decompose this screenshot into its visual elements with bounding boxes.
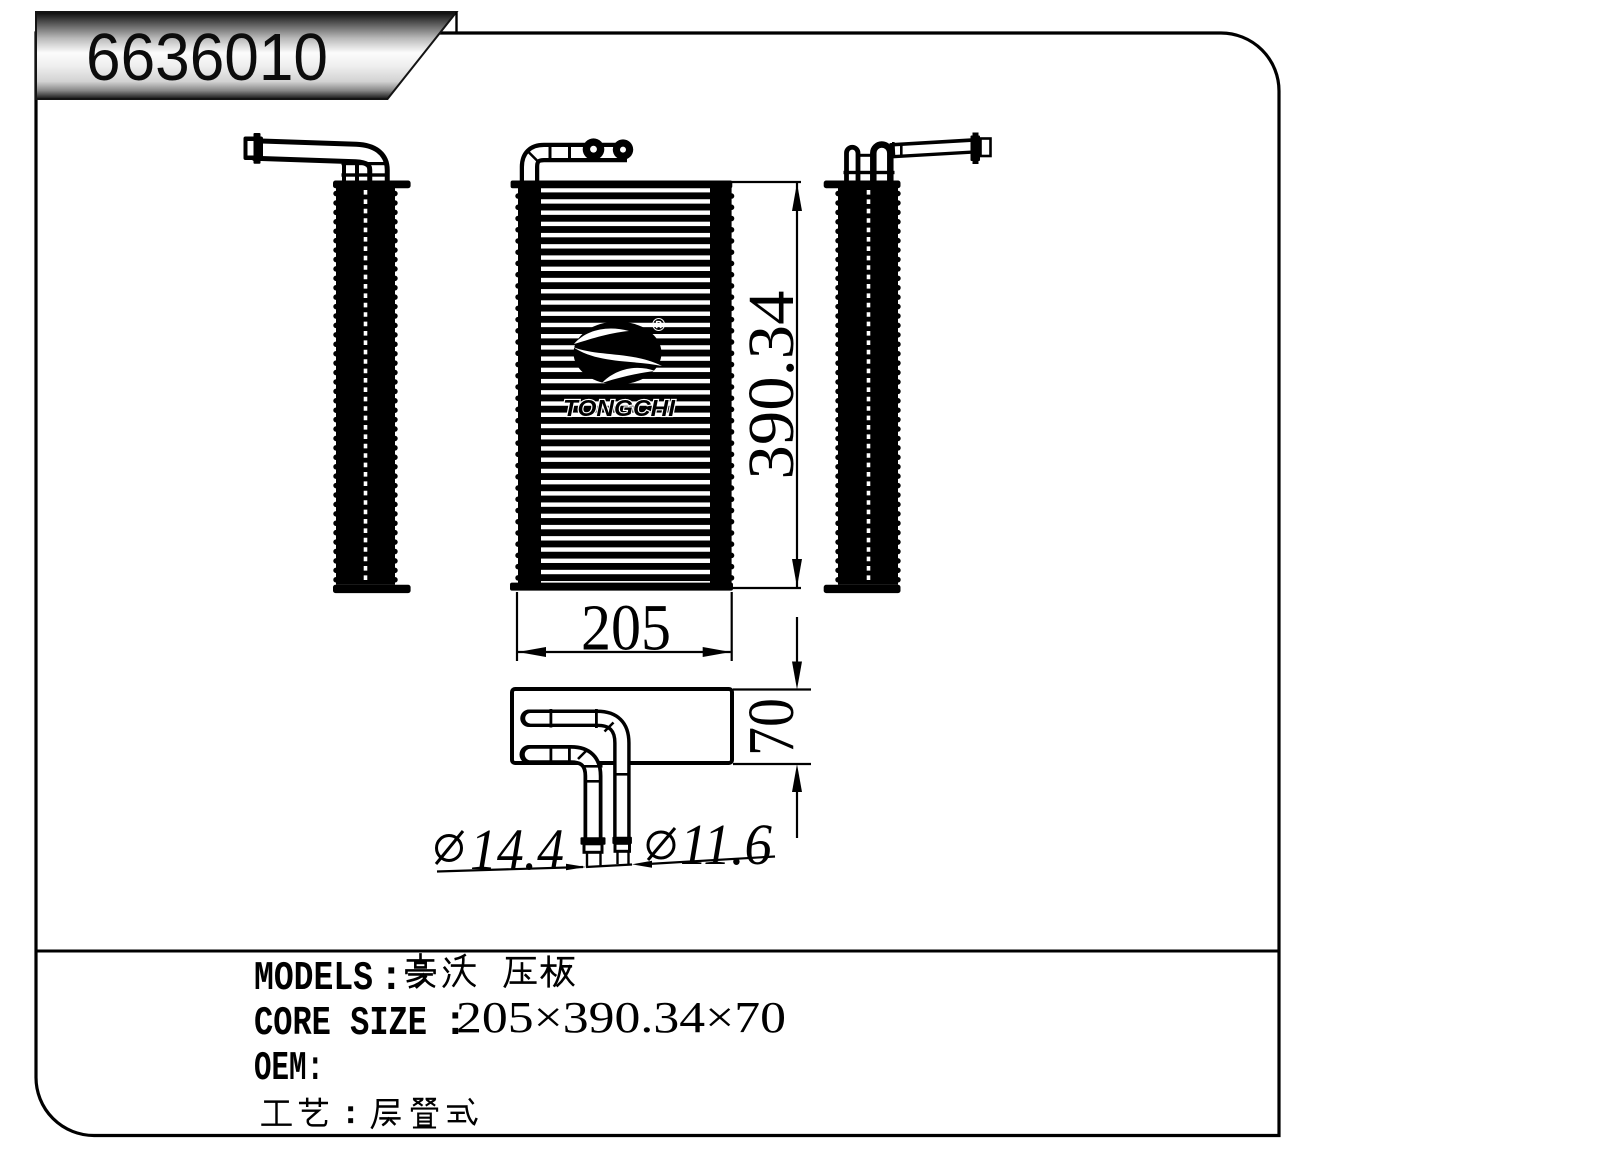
svg-text:OEM:: OEM: bbox=[254, 1046, 324, 1092]
svg-text::: : bbox=[379, 956, 404, 1002]
svg-text:11.6: 11.6 bbox=[680, 812, 772, 877]
svg-text:6636010: 6636010 bbox=[86, 20, 328, 95]
svg-text:®: ® bbox=[652, 315, 665, 335]
svg-text:70: 70 bbox=[735, 698, 808, 756]
svg-text:CORE SIZE: CORE SIZE bbox=[254, 1001, 427, 1047]
svg-text:MODELS: MODELS bbox=[254, 956, 373, 1002]
svg-text:TONGCHI: TONGCHI bbox=[563, 395, 676, 421]
svg-text:205: 205 bbox=[581, 592, 671, 665]
svg-text:14.4: 14.4 bbox=[470, 817, 564, 882]
svg-text:390.34: 390.34 bbox=[735, 291, 808, 480]
svg-text:205×390.34×70: 205×390.34×70 bbox=[456, 993, 786, 1042]
